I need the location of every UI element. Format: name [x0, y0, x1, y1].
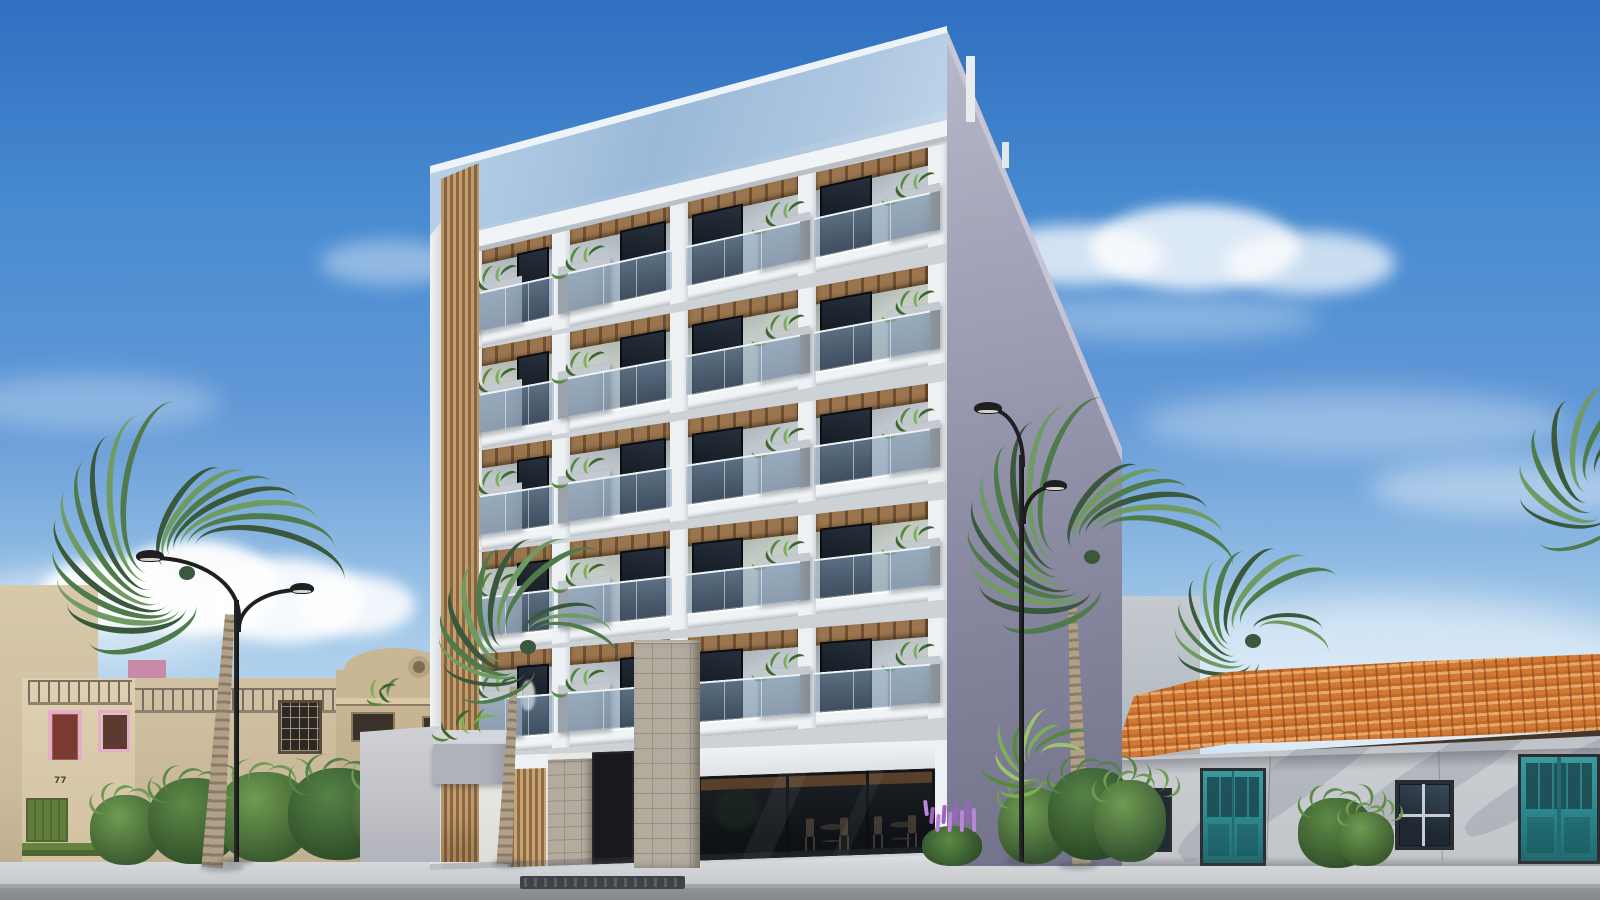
street-scene: 77 [0, 0, 1600, 900]
lamp-glow-face [978, 410, 998, 413]
lamp-glow-face [1046, 487, 1064, 490]
street-lamp-right [0, 0, 1600, 900]
lamp-head [1043, 480, 1067, 491]
lamp-arm [988, 408, 1025, 467]
street-lamps [0, 0, 1600, 900]
lamp-head [974, 402, 1002, 414]
lamp-base-shadow [1005, 857, 1039, 865]
